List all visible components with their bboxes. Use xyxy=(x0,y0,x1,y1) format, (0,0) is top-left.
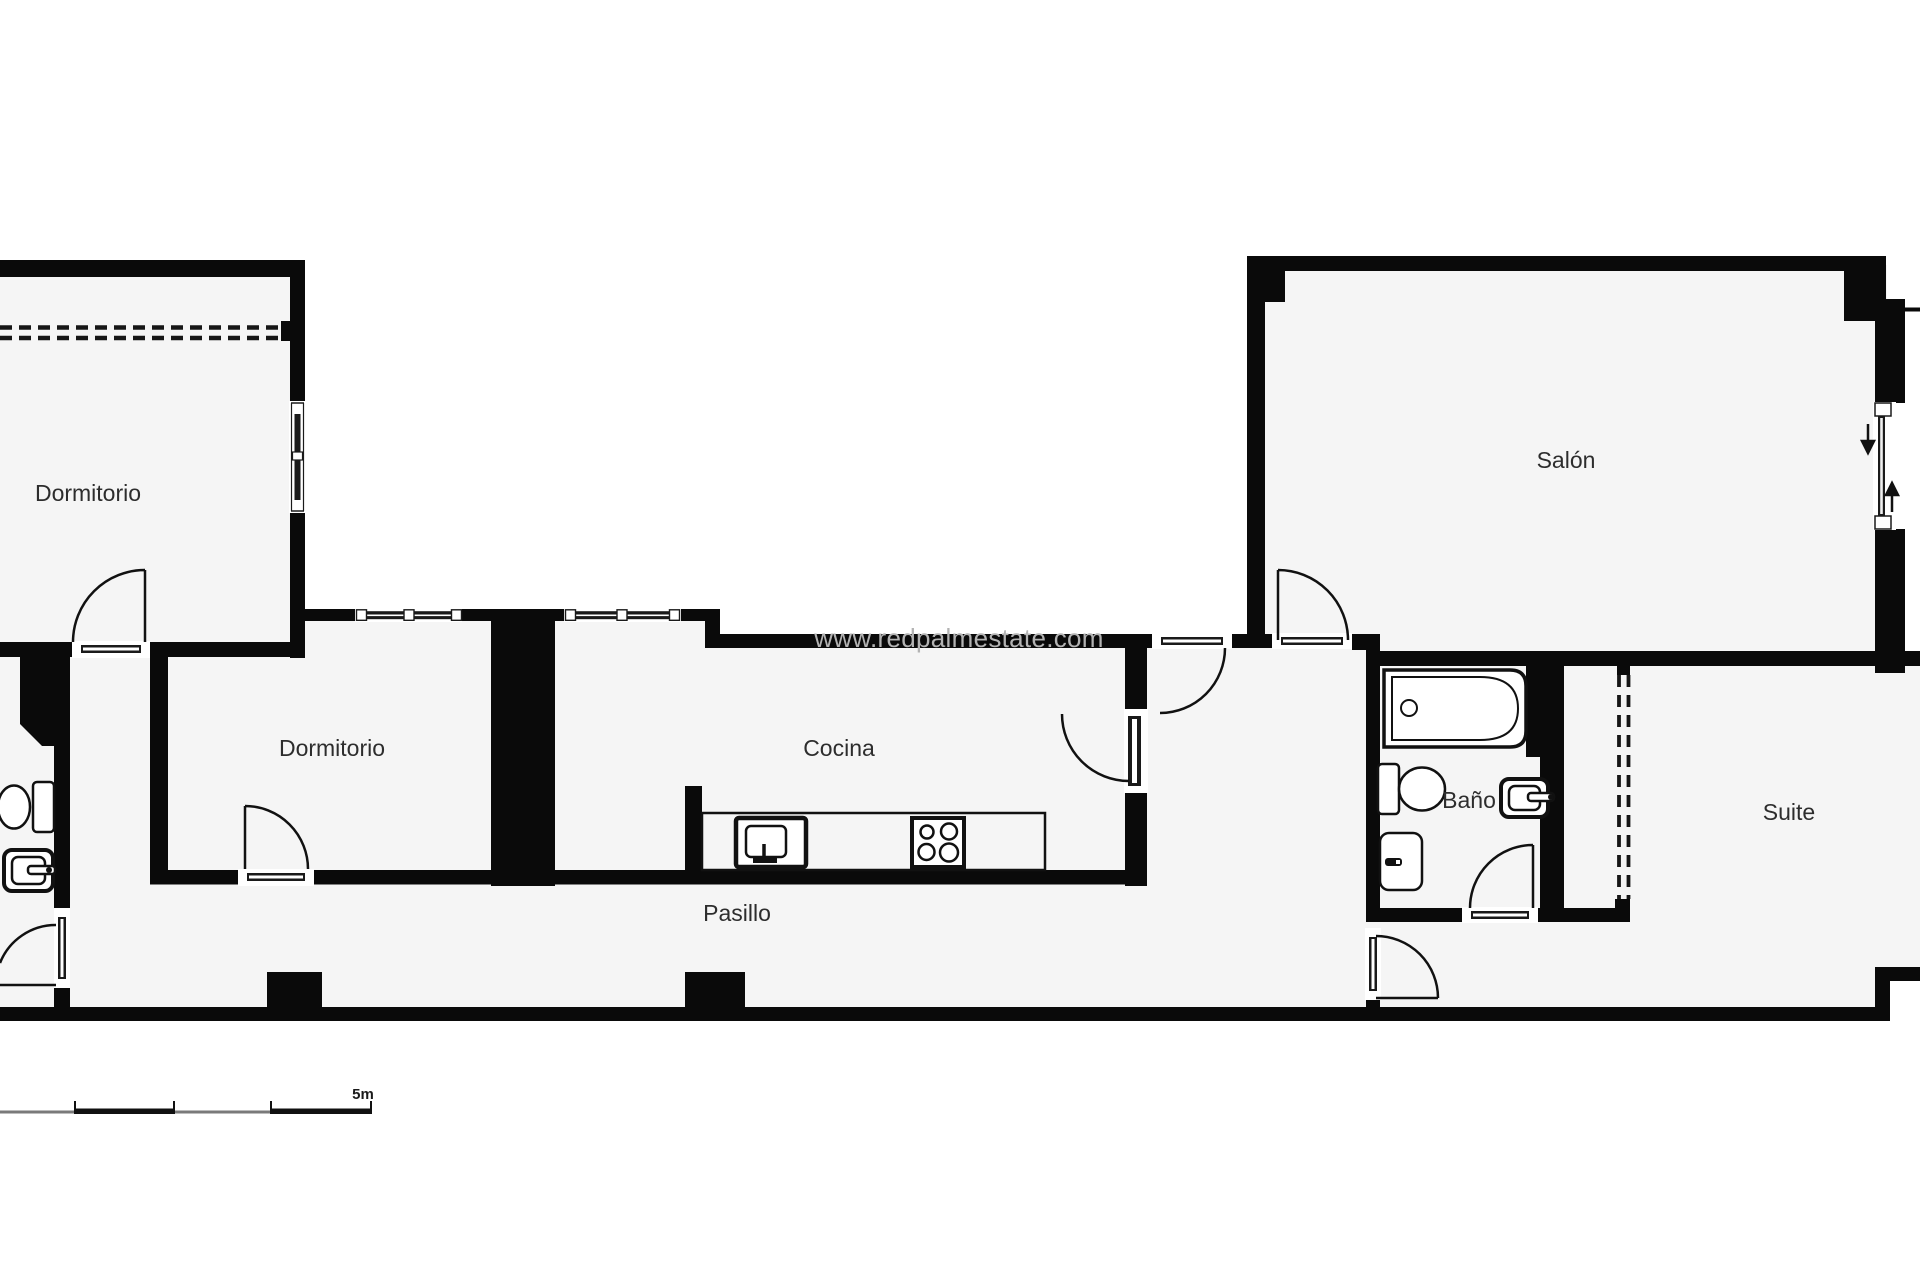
svg-text:Cocina: Cocina xyxy=(803,735,875,761)
svg-text:Suite: Suite xyxy=(1763,799,1815,825)
svg-text:Dormitorio: Dormitorio xyxy=(35,480,141,506)
svg-text:5m: 5m xyxy=(352,1086,374,1103)
svg-text:www.redpalmestate.com: www.redpalmestate.com xyxy=(813,623,1104,653)
svg-text:Salón: Salón xyxy=(1537,447,1596,473)
svg-text:Dormitorio: Dormitorio xyxy=(279,735,385,761)
svg-text:Pasillo: Pasillo xyxy=(703,900,771,926)
svg-text:Baño: Baño xyxy=(1442,787,1496,813)
